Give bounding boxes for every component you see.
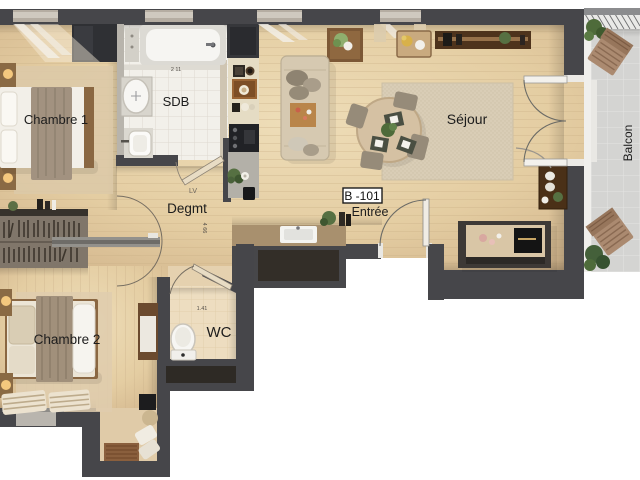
- svg-text:LV: LV: [189, 188, 197, 195]
- svg-text:Chambre 2: Chambre 2: [34, 332, 101, 347]
- svg-text:Chambre 1: Chambre 1: [24, 112, 88, 127]
- svg-text:Entrée: Entrée: [352, 205, 389, 219]
- svg-text:B -101: B -101: [344, 189, 380, 203]
- svg-text:1.41: 1.41: [197, 306, 208, 312]
- svg-text:SDB: SDB: [163, 94, 190, 109]
- svg-text:4 66: 4 66: [201, 223, 207, 234]
- svg-text:2 11: 2 11: [171, 67, 181, 73]
- svg-text:Séjour: Séjour: [447, 111, 488, 127]
- svg-text:Degmt: Degmt: [167, 201, 207, 216]
- svg-text:WC: WC: [207, 324, 232, 341]
- svg-text:Balcon: Balcon: [621, 125, 635, 162]
